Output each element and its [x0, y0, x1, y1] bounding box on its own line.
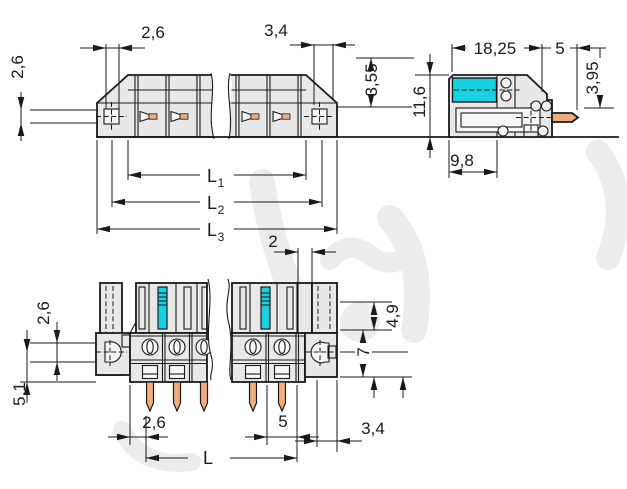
top-view: 2,6 2,6 3,4 3,55 L 1 — [8, 21, 414, 244]
technical-drawing: 2,6 2,6 3,4 3,55 L 1 — [0, 0, 627, 489]
dim-label-sub: 2 — [218, 203, 225, 217]
dim-label-sub: 1 — [218, 176, 225, 190]
housing-upper-right — [232, 283, 312, 333]
dim-top-26v: 2,6 — [8, 55, 98, 141]
cage-clamp-lever — [453, 78, 497, 102]
dim-top-355: 3,55 — [336, 58, 414, 107]
dim-side-395: 3,95 — [583, 48, 614, 108]
dim-L3: L 3 — [97, 140, 337, 244]
dim-label: 9,8 — [450, 151, 474, 170]
housing-lower-left — [130, 333, 207, 382]
dim-label: 3,4 — [264, 21, 288, 40]
dim-label: L — [207, 193, 217, 213]
dim-side-98: 9,8 — [449, 140, 497, 178]
front-view: 2 2,6 5,1 4,9 7 — [10, 232, 412, 468]
dim-side-116: 11,6 — [410, 54, 449, 158]
break-lines-top — [211, 72, 232, 140]
dim-front-26v: 2,6 — [30, 301, 96, 381]
dim-label: 5 — [278, 412, 287, 431]
dim-label: 18,25 — [474, 39, 517, 58]
dim-L1: L 1 — [128, 140, 306, 190]
solder-pin-side — [552, 113, 578, 122]
dim-label: L — [207, 220, 217, 240]
dim-label: 2 — [268, 232, 277, 251]
dim-label: 3,4 — [361, 419, 385, 438]
dim-label: L — [203, 448, 213, 468]
dim-label: 2,6 — [34, 301, 53, 325]
dim-label: 2,6 — [141, 23, 165, 42]
mounting-flange-left — [96, 283, 133, 375]
dim-label: 7 — [354, 347, 373, 356]
dim-label: 11,6 — [410, 86, 429, 118]
dim-label: 3,55 — [362, 63, 381, 96]
dim-front-7: 7 — [340, 330, 412, 398]
housing-upper-left — [136, 283, 207, 333]
break-lines-front — [208, 278, 231, 381]
dim-label: 4,9 — [383, 304, 402, 328]
solder-pins — [147, 382, 286, 411]
dim-label: 5 — [555, 39, 564, 58]
dim-front-34b: 3,4 — [295, 380, 385, 452]
dim-front-51: 5,1 — [10, 330, 96, 406]
dim-label: 2,6 — [8, 55, 27, 79]
dim-label: 3,95 — [583, 61, 602, 94]
dim-label: L — [207, 166, 217, 186]
drawing-canvas: 2,6 2,6 3,4 3,55 L 1 — [0, 0, 627, 489]
dim-label-sub: 3 — [218, 230, 225, 244]
dim-label: 5,1 — [10, 382, 29, 406]
dim-label: 2,6 — [142, 413, 166, 432]
